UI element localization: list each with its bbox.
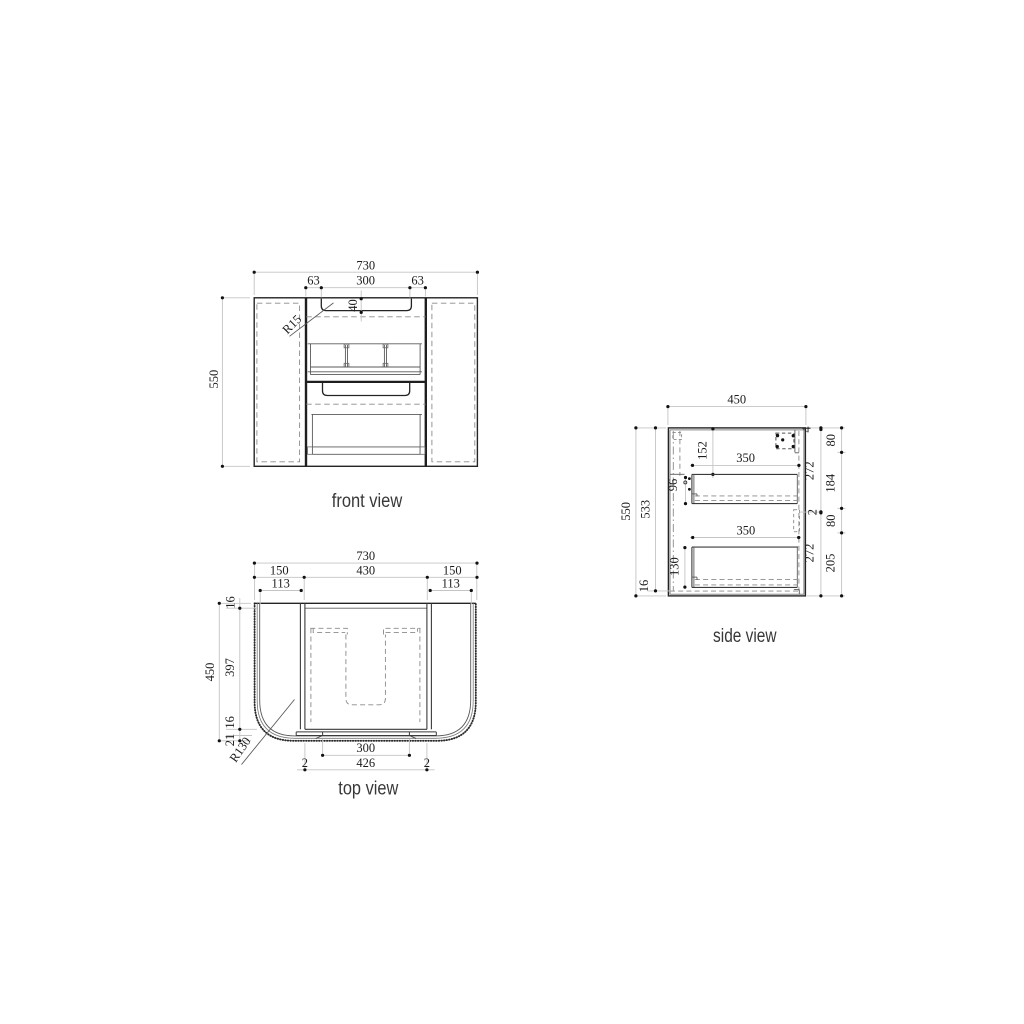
svg-text:96: 96 [666,479,680,492]
svg-text:397: 397 [223,658,237,677]
svg-text:350: 350 [736,451,755,465]
svg-text:2: 2 [806,509,820,515]
svg-text:272: 272 [803,461,817,480]
svg-text:80: 80 [824,514,838,527]
svg-text:550: 550 [207,370,221,389]
svg-text:113: 113 [272,577,290,591]
svg-text:450: 450 [727,393,746,407]
svg-text:730: 730 [356,549,375,563]
svg-text:184: 184 [824,473,838,493]
svg-text:450: 450 [203,663,217,682]
svg-text:side view: side view [713,625,777,647]
svg-text:150: 150 [443,563,462,577]
svg-text:16: 16 [224,596,238,609]
svg-text:550: 550 [619,502,633,521]
svg-text:16: 16 [637,580,651,593]
svg-text:2: 2 [424,756,430,770]
svg-text:R15: R15 [280,312,305,337]
svg-text:350: 350 [737,523,756,537]
svg-text:top view: top view [338,778,399,800]
svg-text:63: 63 [411,274,424,288]
svg-text:150: 150 [270,563,289,577]
svg-text:63: 63 [307,274,320,288]
svg-text:152: 152 [695,441,709,460]
svg-text:430: 430 [356,563,375,577]
svg-text:533: 533 [638,500,652,519]
svg-text:730: 730 [356,258,375,272]
svg-text:113: 113 [442,577,460,591]
svg-text:front view: front view [332,490,403,512]
svg-text:130: 130 [667,557,681,576]
svg-text:2: 2 [302,756,308,770]
svg-text:80: 80 [824,434,838,447]
svg-text:4: 4 [800,426,814,433]
svg-text:16: 16 [223,716,237,729]
svg-text:205: 205 [824,554,838,573]
svg-text:40: 40 [346,299,360,312]
svg-text:300: 300 [356,274,375,288]
svg-text:272: 272 [803,544,817,563]
svg-text:426: 426 [356,756,375,770]
svg-text:300: 300 [356,741,375,755]
